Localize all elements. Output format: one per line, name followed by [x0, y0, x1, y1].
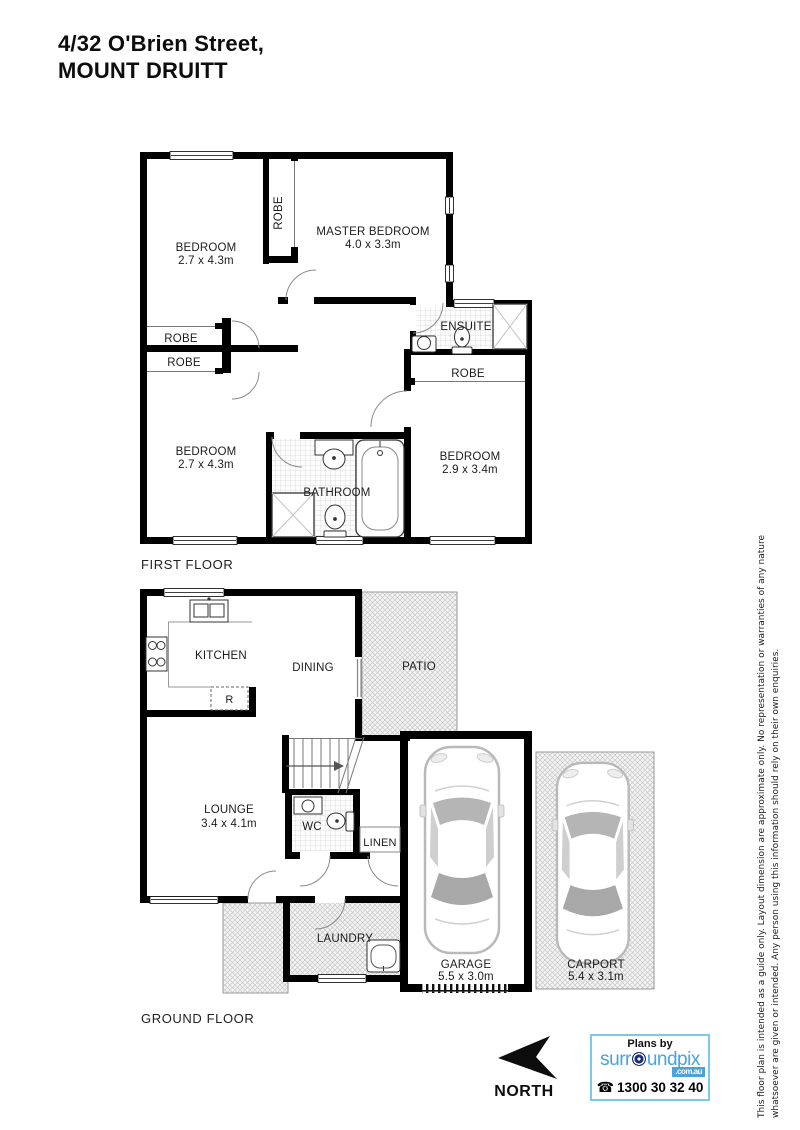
brand-name: surrundpix .com.au: [592, 1050, 708, 1077]
brand-domain: .com.au: [672, 1067, 705, 1077]
patio-slider-door: [358, 659, 362, 697]
wc-label: WC: [302, 821, 322, 833]
garage-roller-door: [422, 984, 508, 993]
title-line1: 4/32 O'Brien Street,: [58, 30, 264, 57]
bedroom-bottom-left-dims: 2.7 x 4.3m: [178, 459, 234, 471]
lounge-label: LOUNGE: [204, 804, 254, 816]
floor-plan-page: 4/32 O'Brien Street, MOUNT DRUITT: [0, 0, 800, 1130]
first-floor-caption: FIRST FLOOR: [141, 557, 233, 572]
rear-courtyard-area: [223, 903, 288, 993]
robe-left-upper-label: ROBE: [164, 333, 198, 345]
master-bedroom-label: MASTER BEDROOM: [316, 226, 429, 238]
garage-label: GARAGE: [441, 959, 492, 971]
linen-label: LINEN: [363, 837, 396, 849]
robe-left-lower-label: ROBE: [167, 357, 201, 369]
garage-car: [420, 747, 504, 953]
dining-label: DINING: [292, 662, 333, 674]
bedroom-bottom-left-label: BEDROOM: [176, 446, 237, 458]
north-arrow-icon: [498, 1036, 557, 1079]
robe-right-label: ROBE: [451, 368, 485, 380]
robe-column-label: ROBE: [273, 196, 285, 230]
phone-icon: ☎: [597, 1079, 614, 1095]
master-bedroom-dims: 4.0 x 3.3m: [345, 239, 401, 251]
first-floor-plan: BEDROOM 2.7 x 4.3m ROBE MASTER BEDROOM 4…: [140, 150, 535, 575]
phone-number: 1300 30 32 40: [617, 1080, 703, 1095]
bedroom-bottom-right-dims: 2.9 x 3.4m: [442, 464, 498, 476]
phone-row: ☎1300 30 32 40: [592, 1079, 708, 1096]
brand-name-pre: surr: [600, 1049, 631, 1070]
garage-dims: 5.5 x 3.0m: [438, 971, 494, 983]
title-line2: MOUNT DRUITT: [58, 57, 264, 84]
bedroom-top-left-dims: 2.7 x 4.3m: [178, 255, 234, 267]
lounge-dims: 3.4 x 4.1m: [201, 818, 257, 830]
north-label: NORTH: [484, 1083, 564, 1101]
fridge-label: R: [225, 694, 233, 706]
north-arrow: [480, 1028, 590, 1084]
bathroom-label: BATHROOM: [303, 487, 370, 499]
laundry-label: LAUNDRY: [317, 933, 373, 945]
disclaimer-line2: whatsoever are given or intended. Any pe…: [770, 518, 784, 1118]
carport-car: [552, 763, 633, 963]
bedroom-top-left-label: BEDROOM: [176, 242, 237, 254]
page-title: 4/32 O'Brien Street, MOUNT DRUITT: [58, 30, 264, 84]
ground-floor-caption: GROUND FLOOR: [141, 1011, 254, 1026]
kitchen-label: KITCHEN: [195, 650, 247, 662]
surroundpix-logo: Plans by surrundpix .com.au ☎1300 30 32 …: [590, 1034, 710, 1101]
carport-dims: 5.4 x 3.1m: [568, 971, 624, 983]
disclaimer: This floor plan is intended as a guide o…: [756, 518, 783, 1118]
disclaimer-line1: This floor plan is intended as a guide o…: [756, 518, 770, 1118]
staircase: [286, 737, 364, 793]
carport-label: CARPORT: [567, 959, 624, 971]
bedroom-bottom-right-label: BEDROOM: [440, 451, 501, 463]
ensuite-label: ENSUITE: [440, 321, 491, 333]
surroundpix-o-icon: [632, 1052, 646, 1066]
patio-label: PATIO: [402, 661, 436, 673]
ground-floor-plan: KITCHEN R DINING PATIO LOUNGE 3.4 x 4.1m…: [140, 585, 660, 1030]
